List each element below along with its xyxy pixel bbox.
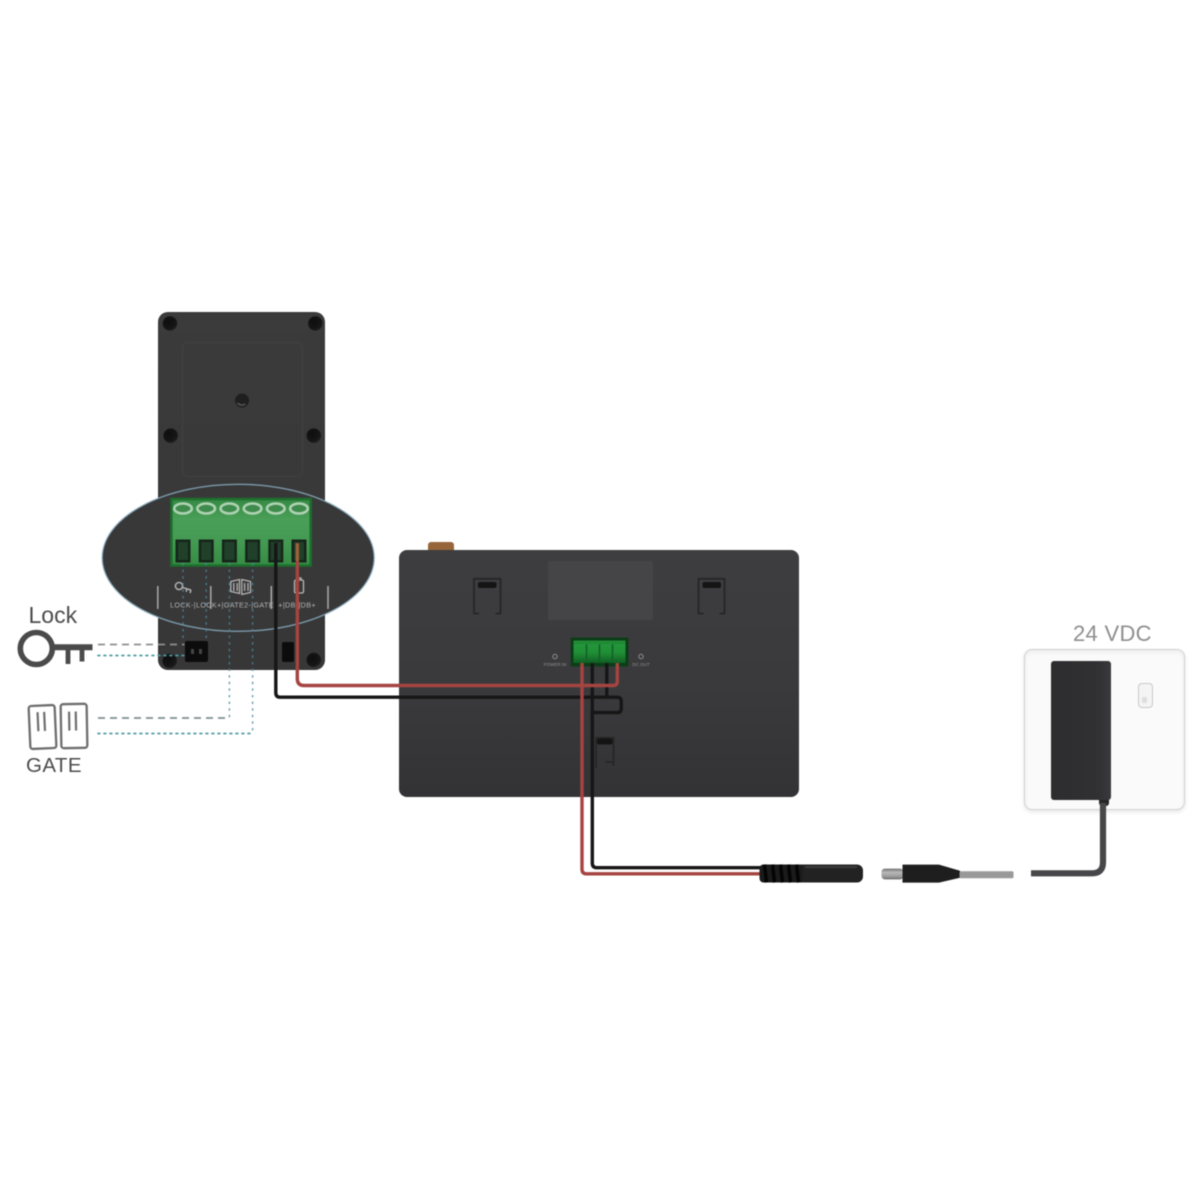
svg-text:POWER IN: POWER IN <box>544 662 567 667</box>
svg-text:LOCK-|LOCK+|GATE2-|GATE2+|DB-|: LOCK-|LOCK+|GATE2-|GATE2+|DB-|DB+ <box>170 601 316 610</box>
svg-text:DC OUT: DC OUT <box>632 662 649 667</box>
